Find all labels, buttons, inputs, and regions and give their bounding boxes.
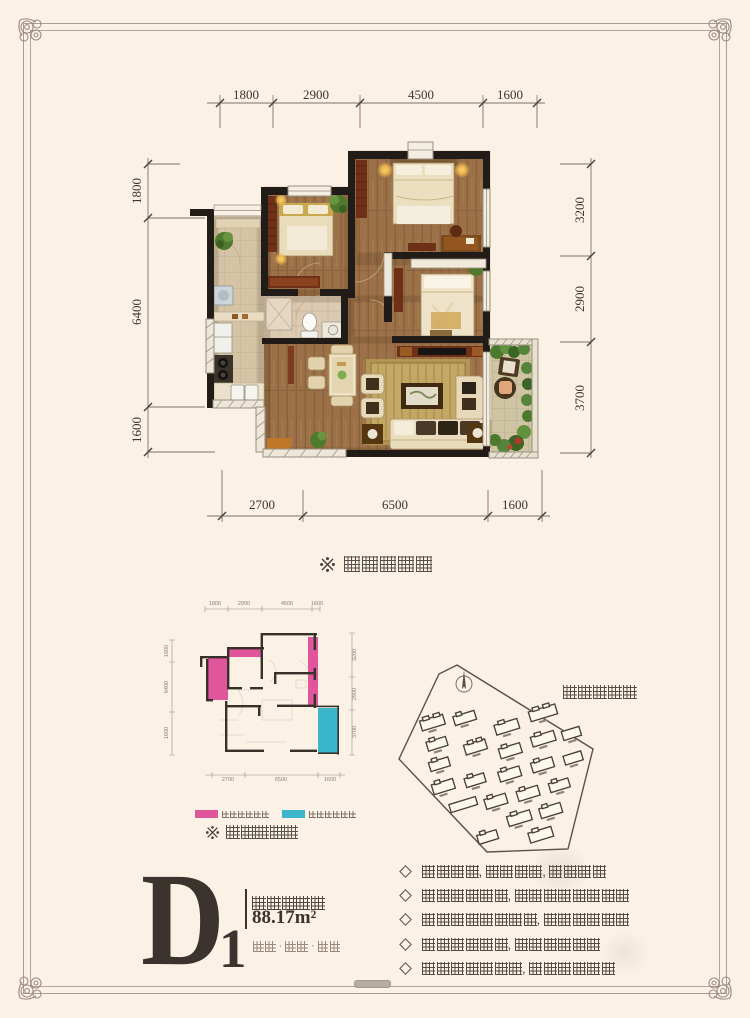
- svg-text:2900: 2900: [303, 87, 329, 102]
- svg-text:3700: 3700: [572, 385, 587, 411]
- svg-text:1800: 1800: [209, 601, 221, 607]
- svg-text:2700: 2700: [249, 497, 275, 512]
- svg-text:1800: 1800: [233, 87, 259, 102]
- svg-text:4500: 4500: [408, 87, 434, 102]
- svg-text:1800: 1800: [164, 645, 170, 657]
- svg-text:2700: 2700: [222, 777, 234, 783]
- svg-text:6500: 6500: [382, 497, 408, 512]
- svg-text:1600: 1600: [311, 601, 323, 607]
- svg-text:1600: 1600: [497, 87, 523, 102]
- svg-text:1600: 1600: [324, 777, 336, 783]
- svg-text:4500: 4500: [281, 601, 293, 607]
- svg-text:1600: 1600: [164, 727, 170, 739]
- svg-text:6500: 6500: [275, 777, 287, 783]
- svg-text:6400: 6400: [164, 681, 170, 693]
- svg-text:2900: 2900: [572, 286, 587, 312]
- svg-text:3200: 3200: [572, 197, 587, 223]
- svg-text:3700: 3700: [352, 726, 358, 738]
- svg-text:1800: 1800: [129, 178, 144, 204]
- svg-text:1600: 1600: [129, 417, 144, 443]
- svg-text:2900: 2900: [352, 688, 358, 700]
- svg-text:6400: 6400: [129, 299, 144, 325]
- svg-text:1600: 1600: [502, 497, 528, 512]
- svg-text:3200: 3200: [352, 649, 358, 661]
- svg-text:2900: 2900: [238, 601, 250, 607]
